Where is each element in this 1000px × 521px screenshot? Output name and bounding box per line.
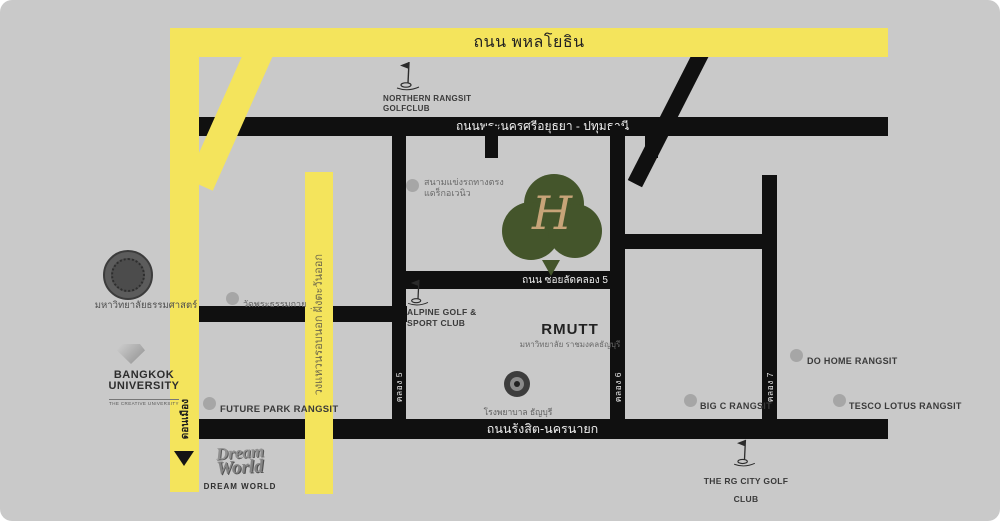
poi-marker-future-park	[203, 397, 216, 410]
poi-tesco-lotus: TESCO LOTUS RANGSIT	[849, 396, 962, 414]
poi-northern-rangsit-golf: NORTHERN RANGSIT GOLFCLUB	[383, 94, 471, 113]
thammasat-seal-inner	[111, 258, 145, 292]
hospital-logo-center	[514, 381, 520, 387]
hospital-logo-inner	[510, 377, 524, 391]
logo-pointer-icon	[542, 260, 560, 276]
dream-world-logo: World	[198, 458, 283, 478]
poi-marker-big-c	[684, 394, 697, 407]
logo-monogram: H	[502, 186, 602, 240]
poi-marker-drag-avenue	[406, 179, 419, 192]
side-street-stub	[485, 126, 498, 158]
thammasat-seal-logo	[103, 250, 153, 300]
road-label-outer-ring: วงแหวนรอบนอก ฝั่งตะวันออก	[305, 180, 333, 470]
road-label-phahonyothin: ถนน พหลโยธิน	[170, 28, 888, 57]
poi-wat-phra-dhammakaya: วัดพระธรรมกาย	[243, 294, 306, 312]
road-rangsit-nakhon-nayok: ถนนรังสิต-นครนายก	[197, 419, 888, 439]
road-label-khlong-5: คลอง 5	[392, 350, 406, 425]
dream-world-caption: DREAM WORLD	[198, 482, 282, 491]
arrow-down-icon	[174, 451, 194, 466]
poi-marker-do-home	[790, 349, 803, 362]
poi-thammasat: มหาวิทยาลัยธรรมศาสตร์	[85, 295, 207, 313]
bangkok-university-logo	[117, 344, 145, 364]
map-canvas: ถนนพระนครศรีอยุธยา - ปทุมธานี ถนนรังสิต-…	[0, 0, 1000, 521]
poi-bangkok-university: BANGKOK UNIVERSITY THE CREATIVE UNIVERSI…	[99, 370, 189, 410]
road-ayutthaya-pathumthani: ถนนพระนครศรีอยุธยา - ปทุมธานี	[197, 117, 888, 136]
poi-thanyaburi-hospital: โรงพยาบาล ธัญบุรี	[478, 402, 558, 420]
road-label-rangsit-nakhon-nayok: ถนนรังสิต-นครนายก	[197, 419, 888, 439]
poi-alpine-golf: ALPINE GOLF & SPORT CLUB	[407, 307, 477, 328]
project-logo: H	[502, 172, 602, 280]
road-label-khlong-6: คลอง 6	[610, 350, 625, 425]
poi-rmutt: RMUTT มหาวิทยาลัย ราชมงคลธัญบุรี	[505, 321, 635, 351]
road-right-mid-connector	[610, 234, 775, 249]
golf-flag-icon	[733, 438, 756, 468]
poi-rg-city-golf: THE RG CITY GOLF CLUB	[696, 471, 796, 507]
side-street-stub	[645, 126, 658, 158]
thanyaburi-hospital-logo	[504, 371, 530, 397]
road-phahonyothin: ถนน พหลโยธิน	[170, 28, 888, 57]
road-label-ayutthaya-pathumthani: ถนนพระนครศรีอยุธยา - ปทุมธานี	[197, 117, 888, 136]
poi-drag-avenue: สนามแข่งรถทางตรง แดร็กอเวนิว	[424, 177, 504, 199]
poi-do-home: DO HOME RANGSIT	[807, 351, 898, 369]
poi-marker-wat	[226, 292, 239, 305]
golf-flag-icon	[396, 60, 420, 92]
poi-big-c: BIG C RANGSIT	[700, 396, 772, 414]
poi-dream-world: Dream World DREAM WORLD	[198, 446, 282, 491]
poi-marker-tesco-lotus	[833, 394, 846, 407]
golf-flag-icon	[407, 278, 429, 307]
poi-future-park: FUTURE PARK RANGSIT	[220, 399, 338, 417]
